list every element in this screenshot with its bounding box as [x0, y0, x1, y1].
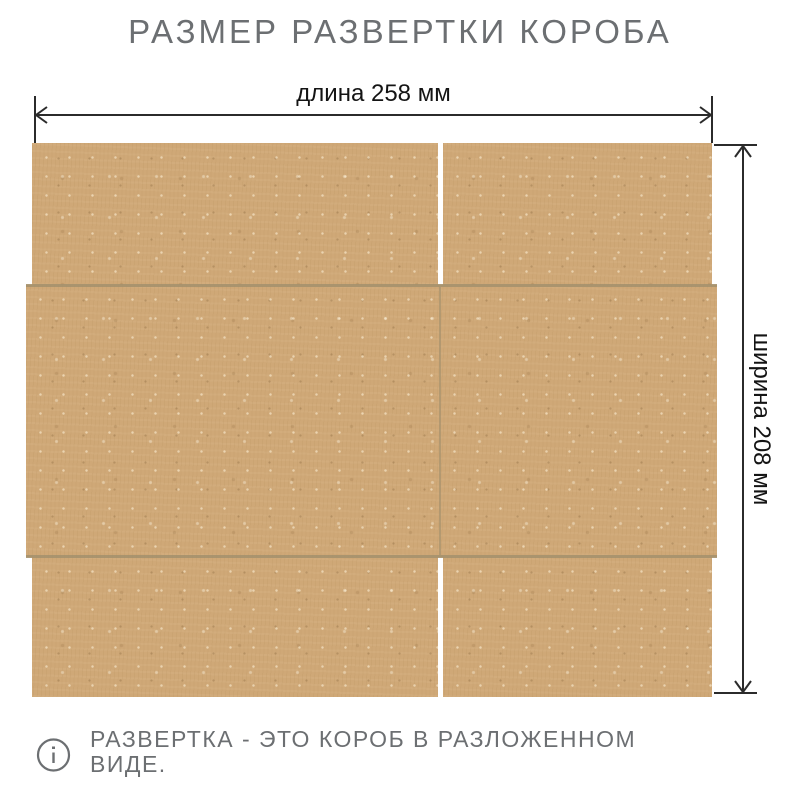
flap-top-left	[32, 143, 438, 285]
double-arrow-horizontal-icon	[0, 90, 800, 150]
crease-line-vertical	[439, 287, 441, 555]
width-dimension-label: ширина 208 мм	[747, 333, 775, 505]
crease-line-bottom	[26, 555, 717, 558]
product-infographic: РАЗМЕР РАЗВЕРТКИ КОРОБА длина 258 мм шир…	[0, 0, 800, 800]
page-title: РАЗМЕР РАЗВЕРТКИ КОРОБА	[0, 13, 800, 51]
flap-top-right	[443, 143, 712, 285]
note-line-1: РАЗВЕРТКА - ЭТО КОРОБ В РАЗЛОЖЕННОМ	[90, 727, 730, 752]
flap-bottom-right	[443, 557, 712, 697]
flap-bottom-left	[32, 557, 438, 697]
panel-middle	[26, 285, 717, 557]
crease-line-top	[26, 284, 717, 287]
note-line-2: ВИДЕ.	[90, 752, 730, 777]
info-icon	[36, 737, 72, 775]
note-text: РАЗВЕРТКА - ЭТО КОРОБ В РАЗЛОЖЕННОМ ВИДЕ…	[90, 727, 730, 777]
